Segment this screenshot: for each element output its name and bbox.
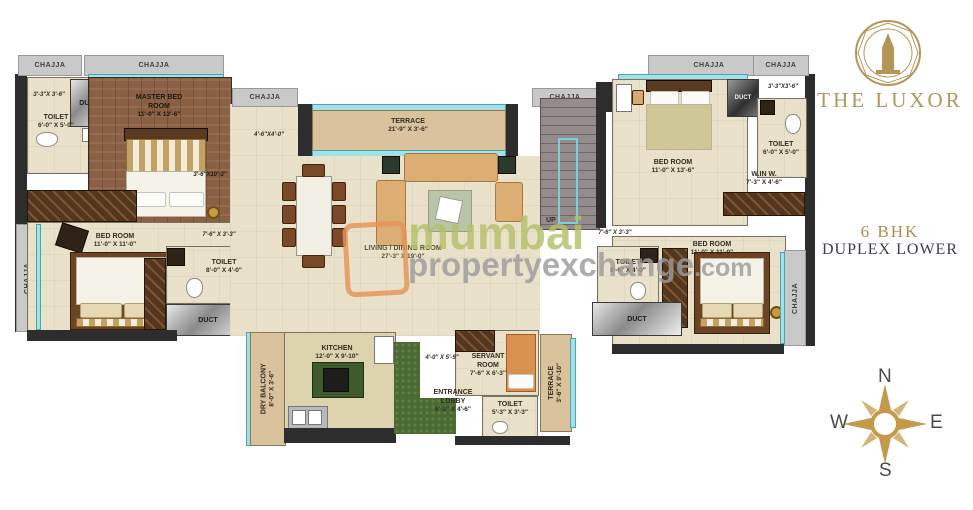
room-dims: 27'-3" X 19'-0"	[362, 253, 444, 261]
window-strip	[780, 252, 785, 344]
compass-north-label: N	[878, 366, 892, 388]
duct-label: DUCT	[735, 95, 752, 101]
sink-basin-icon	[308, 410, 322, 425]
toilet-icon	[785, 114, 801, 134]
wardrobe-icon	[455, 330, 495, 352]
bed-icon	[126, 139, 206, 173]
room-name: TERRACE	[548, 366, 555, 400]
room-name: LIVING / DINING ROOM	[364, 245, 441, 252]
plan-type-line1: 6 BHK	[820, 222, 960, 242]
pillow-icon	[733, 303, 763, 318]
label-nook-top-right: 3'-3"X3'-6"	[760, 84, 806, 92]
label-passage-right: 7'-6" X 3'-3"	[592, 230, 638, 238]
room-name: TOILET	[769, 141, 794, 148]
room-name: ENTRANCE LOBBY	[434, 389, 473, 405]
stove-icon	[323, 368, 349, 392]
chajja-label: CHAJJA	[792, 282, 799, 313]
chair-icon	[282, 205, 296, 224]
chajja-label: CHAJJA	[765, 62, 796, 69]
wall	[504, 104, 518, 156]
room-name: KITCHEN	[321, 345, 352, 352]
label-passage-left: 7'-6" X 3'-3"	[196, 232, 242, 240]
room-name: SERVANT ROOM	[472, 353, 505, 369]
room-name: TOILET	[212, 259, 237, 266]
room-dims: 3'-6" X 9'-10"	[556, 363, 564, 403]
wall	[612, 344, 784, 354]
wall	[596, 98, 606, 228]
toilet-icon	[186, 278, 203, 298]
label-bedroom-right-bottom: BED ROOM 11'-0" X 11'-0"	[678, 240, 746, 258]
duct-right-top: DUCT	[727, 79, 759, 117]
chair-icon	[302, 164, 325, 177]
room-dry-balcony: DRY BALCONY 8'-0" X 3'-6"	[250, 332, 286, 446]
coffee-table-icon	[435, 196, 463, 224]
chajja-strip: CHAJJA	[232, 88, 298, 107]
chair-icon	[332, 182, 346, 201]
sofa-icon	[404, 153, 498, 182]
chair-icon	[282, 228, 296, 247]
sofa-chaise-icon	[376, 180, 406, 246]
room-name: TOILET	[44, 114, 69, 121]
duct-label: DUCT	[198, 317, 217, 324]
pillow-icon	[80, 303, 122, 318]
label-bedroom-left: BED ROOM 11'-0" X 11'-0"	[80, 232, 150, 250]
compass-south-label: S	[879, 460, 892, 482]
room-dims: 8'-0" X 3'-6"	[268, 364, 276, 415]
room-terrace-bottom: TERRACE 3'-6" X 9'-10"	[540, 334, 572, 432]
label-toilet-top-left: TOILET 6'-0" X 5'-0"	[28, 113, 84, 131]
desk-icon	[616, 84, 632, 112]
bed-icon	[646, 104, 712, 150]
label-walk-in-wardrobe: W.IN W. 7'-3" X 4'-6"	[738, 170, 790, 188]
label-servant-room: SERVANT ROOM 7'-6" X 6'-3"	[464, 352, 512, 379]
chajja-strip-vertical: CHAJJA	[784, 250, 806, 346]
label-terrace-top: TERRACE 21'-9" X 3'-6"	[370, 117, 446, 135]
label-toilet-top-right: TOILET 6'-0" X 5'-0"	[758, 140, 804, 158]
pillow-icon	[169, 192, 204, 207]
label-kitchen-passage: 4'-0" X 5'-9"	[418, 355, 466, 363]
room-dims: 11'-0" X 11'-0"	[678, 249, 746, 257]
stair-rail	[558, 138, 578, 224]
room-dims: 7'-6" X 6'-3"	[464, 370, 512, 378]
label-up: UP	[541, 216, 561, 225]
room-dims: 8'-0" X 4'-0"	[606, 267, 650, 275]
sink-basin-icon	[292, 410, 306, 425]
plant-table-icon	[498, 156, 516, 174]
logo	[840, 18, 936, 88]
room-dims: 8'-0" X 4'-0"	[202, 267, 246, 275]
shoe-rack-icon	[27, 190, 137, 222]
wardrobe-icon	[144, 258, 166, 330]
pillow-icon	[702, 303, 732, 318]
chajja-strip: CHAJJA	[84, 55, 224, 76]
label-dry-balcony: DRY BALCONY 8'-0" X 3'-6"	[259, 364, 277, 415]
label-bedroom-right-top: BED ROOM 11'-0" X 13'-6"	[638, 158, 708, 176]
wall	[27, 330, 177, 341]
label-toilet-right: TOILET 8'-0" X 4'-0"	[606, 258, 650, 276]
wardrobe-icon	[723, 192, 805, 216]
compass-west-label: W	[830, 412, 848, 434]
chajja-label: CHAJJA	[693, 62, 724, 69]
wall	[455, 436, 570, 445]
room-dims: 5'-3" X 3'-3"	[488, 409, 532, 417]
chajja-strip: CHAJJA	[648, 55, 770, 76]
room-dims: 12'-0" X 9'-10"	[306, 353, 368, 361]
label-entrance-lobby: ENTRANCE LOBBY 6'-3" X 4'-6"	[424, 388, 482, 415]
fridge-icon	[374, 336, 394, 364]
room-name: W.IN W.	[751, 171, 776, 178]
chair-icon	[332, 205, 346, 224]
label-master-bedroom: MASTER BED ROOM 11'-0" X 13'-6"	[128, 93, 190, 120]
armchair-icon	[495, 182, 523, 222]
toilet-icon	[630, 282, 646, 300]
logo-title: THE LUXOR	[812, 88, 968, 113]
floor-plan-canvas: CHAJJA CHAJJA DUCT 3'-3"X 3'-6" TOILET 6…	[0, 0, 973, 510]
room-dims: 11'-0" X 11'-0"	[80, 241, 150, 249]
plant-table-icon	[382, 156, 400, 174]
pillow-icon	[650, 91, 679, 105]
room-name: DRY BALCONY	[260, 364, 267, 415]
room-name: BED ROOM	[96, 233, 135, 240]
label-living-dining: LIVING / DINING ROOM 27'-3" X 19'-0"	[362, 244, 444, 262]
room-name: MASTER BED ROOM	[136, 94, 182, 110]
room-dims: 21'-9" X 3'-6"	[370, 126, 446, 134]
chair-icon	[632, 90, 644, 105]
chajja-label: CHAJJA	[34, 62, 65, 69]
wall	[298, 104, 312, 156]
rug-icon	[700, 318, 764, 327]
room-dims: 6'-3" X 4'-6"	[424, 406, 482, 414]
label-kitchen: KITCHEN 12'-0" X 9'-10"	[306, 344, 368, 362]
duct-label: DUCT	[627, 316, 646, 323]
room-name: BED ROOM	[654, 159, 693, 166]
logo-ornament-icon	[840, 18, 936, 88]
room-dims: 7'-3" X 4'-6"	[738, 179, 790, 187]
label-terrace-bottom: TERRACE 3'-6" X 9'-10"	[547, 363, 565, 403]
chajja-strip: CHAJJA	[18, 55, 82, 76]
chajja-label: CHAJJA	[249, 94, 280, 101]
label-toilet-left: TOILET 8'-0" X 4'-0"	[202, 258, 246, 276]
chajja-label: CHAJJA	[138, 62, 169, 69]
dining-table-icon	[296, 176, 332, 256]
sink-icon	[760, 100, 775, 115]
toilet-icon	[36, 132, 58, 147]
chajja-strip: CHAJJA	[753, 55, 809, 76]
room-dims: 11'-0" X 13'-6"	[638, 167, 708, 175]
room-name: BED ROOM	[693, 241, 732, 248]
window-strip	[570, 338, 576, 428]
toilet-icon	[492, 421, 508, 434]
pillow-icon	[681, 91, 710, 105]
chair-icon	[282, 182, 296, 201]
label-nook-top-left: 3'-3"X 3'-6"	[29, 92, 69, 100]
label-toilet-servant: TOILET 5'-3" X 3'-3"	[488, 400, 532, 418]
label-passage-beside-master: 3'-6"X10'-3"	[188, 172, 232, 180]
sink-icon	[167, 248, 185, 266]
chair-icon	[332, 228, 346, 247]
lamp-icon	[207, 206, 220, 219]
compass-east-label: E	[930, 412, 943, 434]
bed-icon	[700, 258, 764, 304]
compass: N E S W	[830, 372, 940, 480]
room-dims: 11'-0" X 13'-6"	[128, 111, 190, 119]
room-name: TOILET	[616, 259, 641, 266]
room-name: TOILET	[498, 401, 523, 408]
window-strip	[36, 224, 41, 330]
room-dims: 6'-0" X 5'-0"	[28, 122, 84, 130]
room-name: TERRACE	[391, 118, 425, 125]
duct-right: DUCT	[592, 302, 682, 336]
label-passage-beside-terrace: 4'-6"X4'-0"	[246, 132, 292, 140]
room-dims: 6'-0" X 5'-0"	[758, 149, 804, 157]
chair-icon	[302, 255, 325, 268]
wall	[284, 428, 396, 443]
plan-type-line2: DUPLEX LOWER	[812, 241, 968, 259]
